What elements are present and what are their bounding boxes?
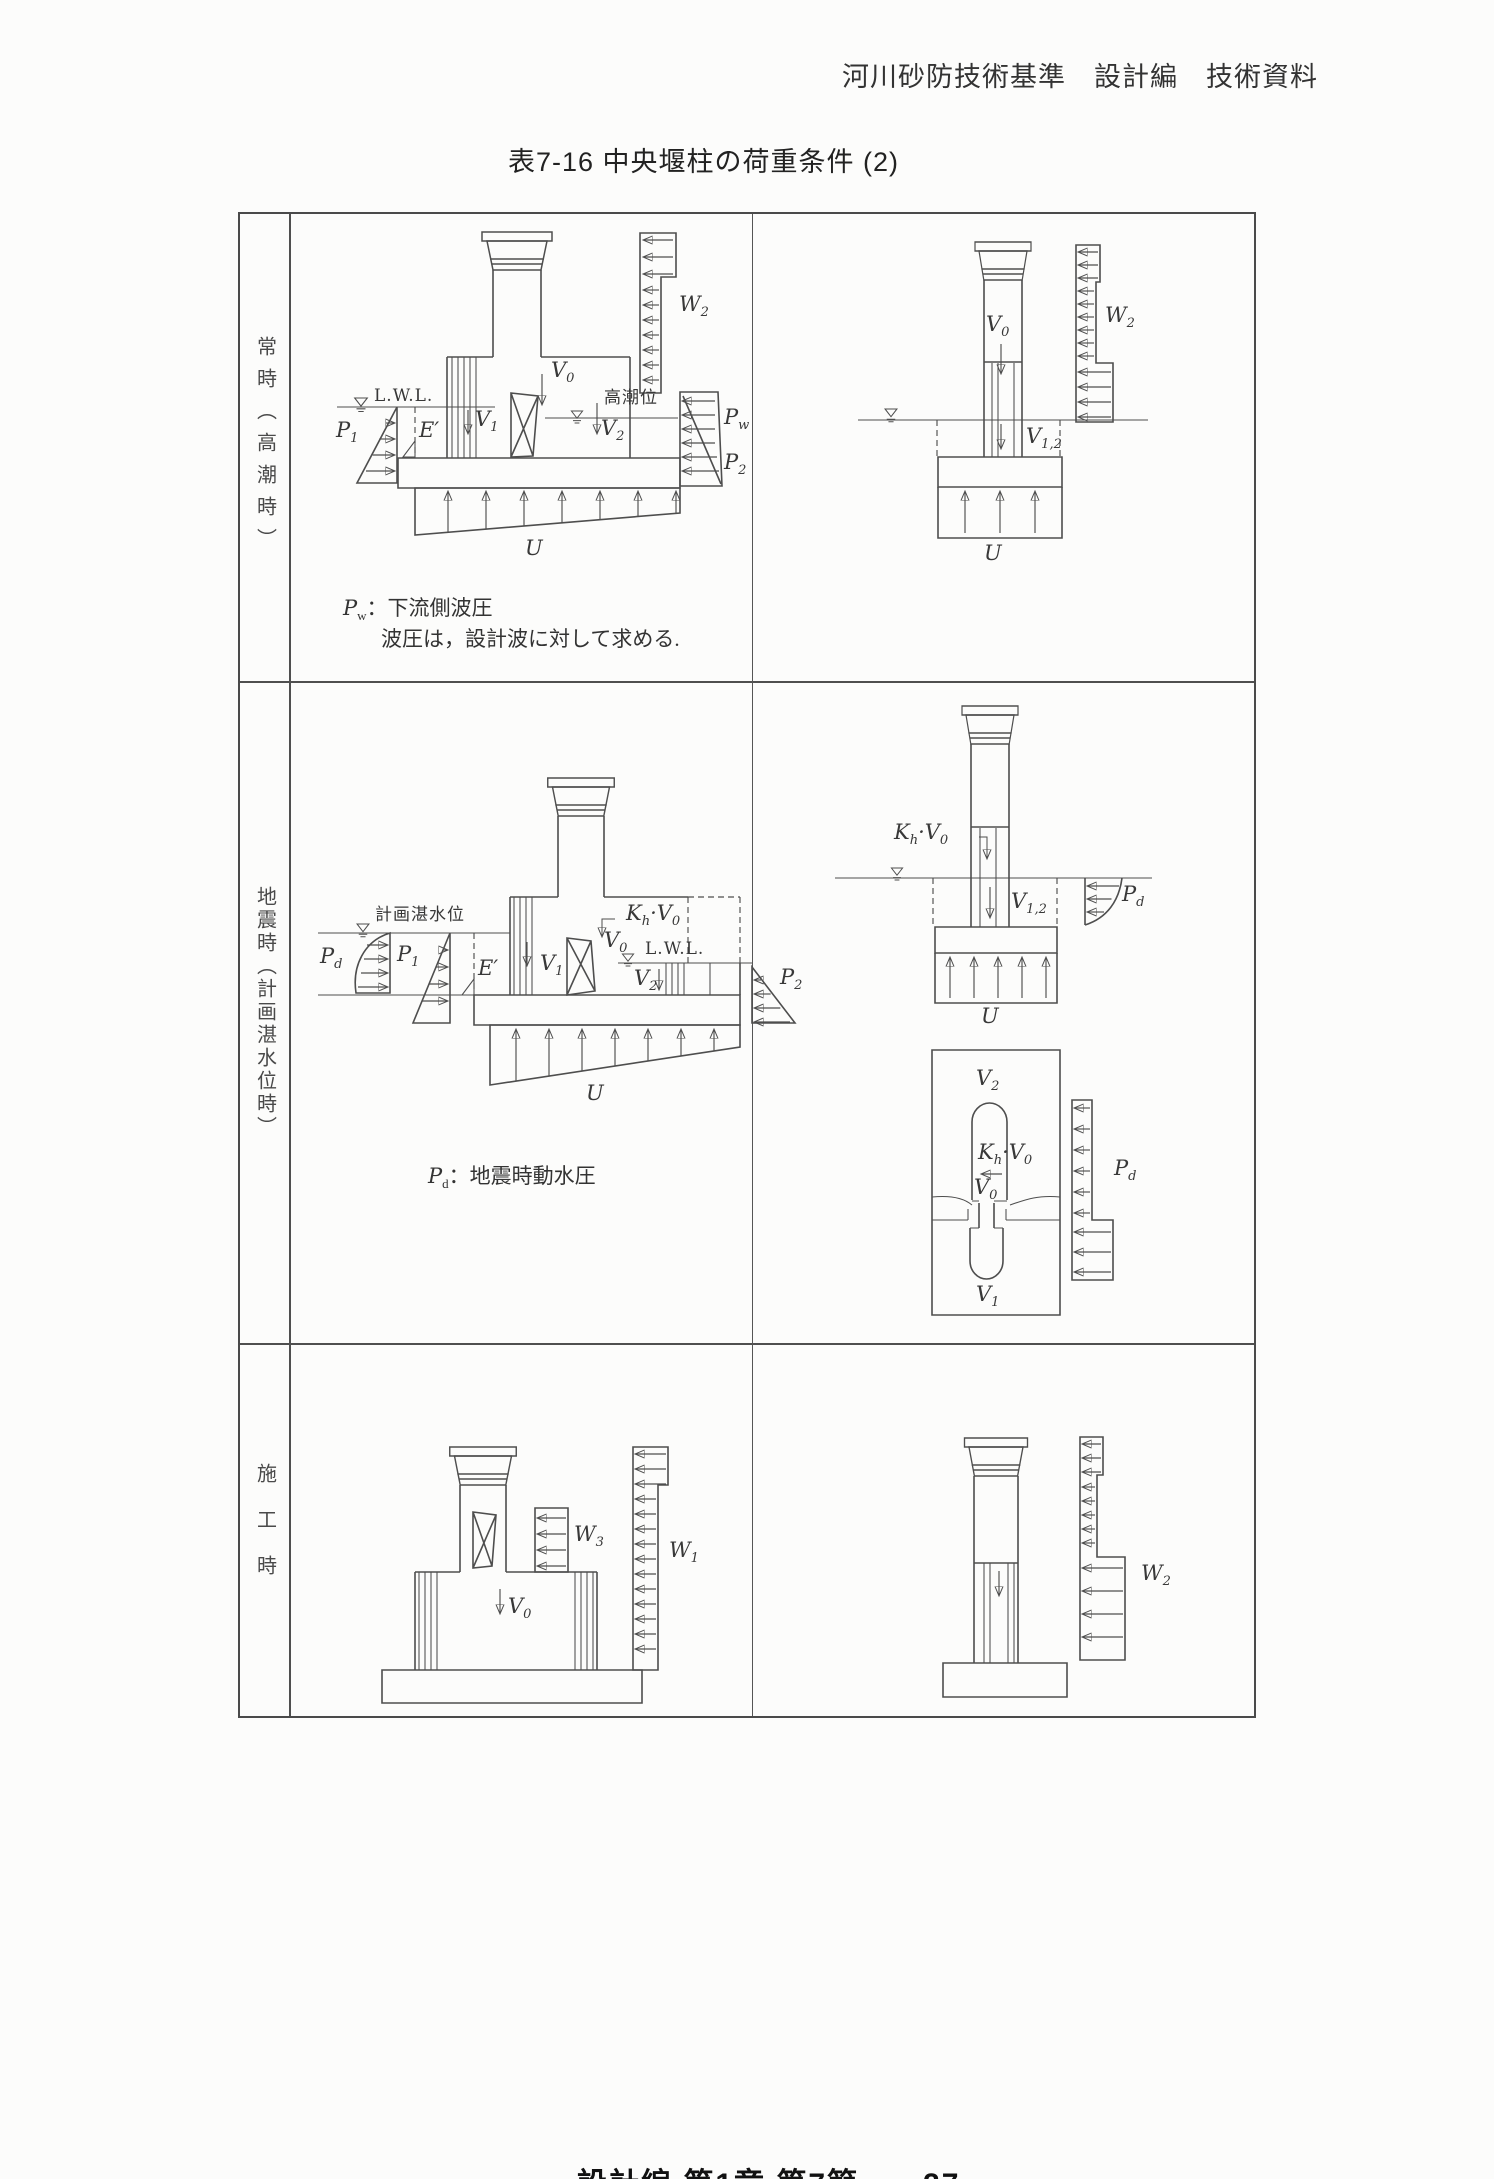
pillar-bell-top [965,1438,1028,1476]
water-level-icon [622,954,633,966]
document-page: 河川砂防技術基準 設計編 技術資料 表7-16 中央堰柱の荷重条件 (2) 常時… [0,0,1494,2179]
diagram-earthquake-side-view [835,706,1152,1003]
pillar-bell-top [482,232,552,270]
diagram-normal-side-view [858,242,1148,538]
page-footer: 設計編 第1章 第7節 27 [577,2159,960,2179]
diagram-normal-front-view [337,232,722,535]
pillar-bell-top [450,1447,517,1485]
water-level-icon [355,398,368,412]
water-level-icon [357,924,369,937]
gate-leaf-icon [473,1512,496,1568]
pillar-bell-top [962,706,1018,744]
diagram-line-art [0,0,1494,2179]
diagram-earthquake-front-view [318,778,795,1085]
diagram-construction-front-view [382,1447,668,1703]
diagram-construction-side-view [943,1437,1125,1697]
pillar-bell-top [975,242,1031,280]
gate-leaf-icon [567,938,595,995]
gate-leaf-icon [511,393,538,457]
pillar-bell-top [548,778,615,816]
diagram-earthquake-plan-view [932,1050,1113,1315]
water-level-icon [571,411,582,423]
